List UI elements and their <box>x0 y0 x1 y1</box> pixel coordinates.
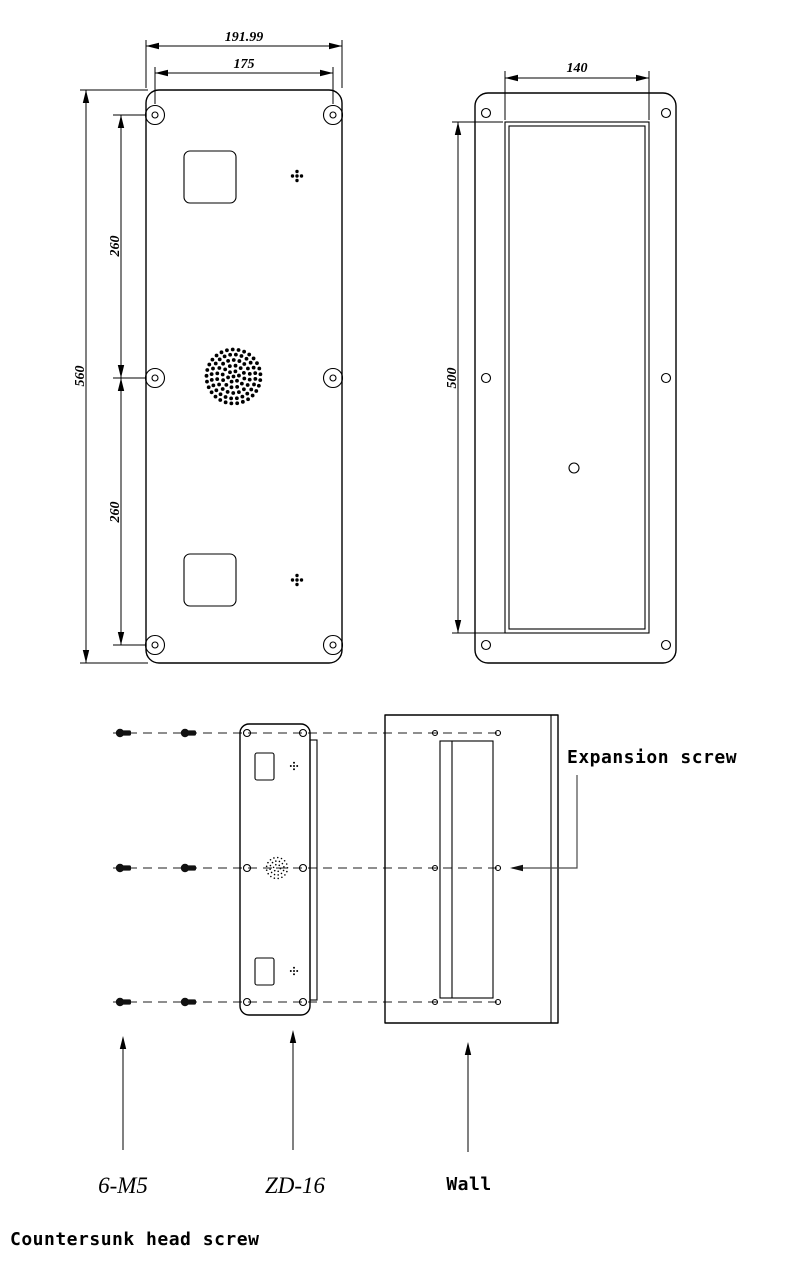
grille-dot <box>214 362 218 366</box>
grille-dot <box>218 357 222 361</box>
grille-dot <box>232 358 236 362</box>
screw-shank <box>122 730 131 735</box>
grille-dot <box>281 877 283 879</box>
cross-dot <box>293 973 295 975</box>
grille-dot <box>242 350 246 354</box>
grille-dot <box>274 874 276 876</box>
grille-dot <box>214 388 218 392</box>
grille-dot <box>247 353 251 357</box>
grille-dot <box>267 862 269 864</box>
grille-dot <box>228 370 232 374</box>
grille-dot <box>237 348 241 352</box>
grille-dot <box>286 863 288 865</box>
arrowhead-left <box>505 75 518 81</box>
arrowhead-left <box>155 70 168 76</box>
grille-dot <box>225 348 229 352</box>
grille-dot <box>279 861 281 863</box>
grille-dot <box>223 354 227 358</box>
cross-dot <box>290 765 292 767</box>
grille-dot <box>283 870 285 872</box>
grille-dot <box>240 395 244 399</box>
frame-hole <box>482 374 491 383</box>
expansion-screw-label: Expansion screw <box>567 747 737 768</box>
technical-drawing: 191.99 175 560 <box>0 0 800 1276</box>
front-panel-outline <box>146 90 342 663</box>
arrowhead-up <box>120 1036 126 1049</box>
cross-dot <box>295 174 298 177</box>
grille-dot <box>229 402 233 406</box>
cross-dot <box>295 574 298 577</box>
grille-dot <box>217 366 221 370</box>
drawing-page: 191.99 175 560 <box>0 0 800 1276</box>
grille-dot <box>246 383 250 387</box>
grille-dot <box>280 868 282 870</box>
cross-dot <box>291 174 294 177</box>
grille-dot <box>239 366 243 370</box>
grille-dot <box>254 389 258 393</box>
grille-dot <box>230 385 234 389</box>
grille-dot <box>269 868 271 870</box>
cross-dot <box>300 578 303 581</box>
grille-dot <box>211 358 215 362</box>
grille-dot <box>275 860 277 862</box>
grille-dot <box>277 878 279 880</box>
dim-opening-height-text: 500 <box>445 368 460 389</box>
dim-mount-width-text: 175 <box>234 57 255 72</box>
cross-dot <box>293 762 295 764</box>
cross-dot <box>295 583 298 586</box>
grille-dot <box>283 866 285 868</box>
cross-dot <box>300 174 303 177</box>
grille-dot <box>245 357 249 361</box>
mount-hole-outer <box>324 636 343 655</box>
grille-dot <box>287 867 289 869</box>
grille-dot <box>246 397 250 401</box>
arrowhead-down <box>83 650 89 663</box>
grille-dot <box>266 869 268 871</box>
front-speaker-grille <box>205 348 263 406</box>
dim-opening-height: 500 <box>445 122 507 633</box>
grille-dot <box>241 400 245 404</box>
grille-dot <box>205 380 209 384</box>
grille-dot <box>270 876 272 878</box>
grille-dot <box>221 378 225 382</box>
grille-dot <box>273 867 275 869</box>
grille-dot <box>277 870 279 872</box>
grille-dot <box>277 857 279 859</box>
countersunk-label: Countersunk head screw <box>10 1229 259 1250</box>
grille-dot <box>235 401 239 405</box>
grille-dot <box>215 371 219 375</box>
cross-dot <box>296 765 298 767</box>
dim-overall-height: 560 <box>73 90 148 663</box>
mount-hole-outer <box>146 106 165 125</box>
grille-dot <box>275 864 277 866</box>
front-bottom-cutout <box>184 554 236 606</box>
grille-dot <box>234 353 238 357</box>
grille-dot <box>282 863 284 865</box>
rear-mount-holes <box>482 109 671 650</box>
grille-dot <box>281 858 283 860</box>
arrowhead-right <box>329 43 342 49</box>
grille-dot <box>249 388 253 392</box>
grille-dot <box>270 859 272 861</box>
grille-dot <box>224 395 228 399</box>
grille-dot <box>221 362 225 366</box>
cross-dot <box>290 970 292 972</box>
grille-dot <box>211 383 215 387</box>
mount-hole-inner <box>152 642 158 648</box>
wall-label: Wall <box>446 1174 491 1195</box>
grille-dot <box>217 383 221 387</box>
grille-dot <box>237 374 241 378</box>
dim-mount-upper-text: 260 <box>108 236 123 258</box>
countersunk-screws <box>116 729 196 1006</box>
arrowhead-down <box>118 632 124 645</box>
cross-dot <box>293 970 295 972</box>
arrowhead-up <box>83 90 89 103</box>
grille-dot <box>223 367 227 371</box>
grille-dot <box>232 375 236 379</box>
grille-dot <box>231 391 235 395</box>
grille-dot <box>235 385 239 389</box>
mount-hole-inner <box>152 112 158 118</box>
dim-overall-height-text: 560 <box>73 366 88 387</box>
grille-dot <box>259 372 263 376</box>
grille-dot <box>252 357 256 361</box>
grille-dot <box>215 354 219 358</box>
grille-dot <box>230 380 234 384</box>
grille-dot <box>270 865 272 867</box>
front-top-cutout <box>184 151 236 203</box>
front-screw-crosses <box>291 170 303 586</box>
frame-hole <box>662 109 671 118</box>
mount-hole-inner <box>152 375 158 381</box>
arrowhead-up <box>118 378 124 391</box>
grille-dot <box>207 363 211 367</box>
grille-dot <box>253 371 257 375</box>
grille-dot <box>224 383 228 387</box>
screw-spec-callout: 6-M5 <box>98 1036 148 1198</box>
grille-dot <box>242 387 246 391</box>
grille-dot <box>207 385 211 389</box>
screw-shank <box>187 730 196 735</box>
frame-hole <box>662 641 671 650</box>
grille-dot <box>281 873 283 875</box>
cross-dot <box>293 765 295 767</box>
grille-dot <box>266 865 268 867</box>
install-bottom-cutout <box>255 958 274 985</box>
arrowhead-right <box>320 70 333 76</box>
grille-dot <box>248 378 252 382</box>
rear-opening-inner <box>509 126 645 629</box>
grille-dot <box>274 877 276 879</box>
arrowhead-up <box>290 1030 296 1043</box>
leader-line <box>512 775 577 868</box>
model-callout: ZD-16 <box>265 1030 326 1198</box>
grille-dot <box>245 392 249 396</box>
grille-dot <box>240 354 244 358</box>
arrowhead-up <box>118 115 124 128</box>
dim-mount-spacing: 260 260 <box>108 115 145 645</box>
grille-dot <box>234 369 238 373</box>
screw-shank <box>122 999 131 1004</box>
wall-callout: Wall <box>446 1042 491 1195</box>
grille-dot <box>253 377 257 381</box>
grille-dot <box>221 387 225 391</box>
grille-dot <box>286 871 288 873</box>
grille-dot <box>205 368 209 372</box>
grille-dot <box>240 382 244 386</box>
cross-dot <box>293 768 295 770</box>
arrowhead-down <box>118 365 124 378</box>
grille-dot <box>235 379 239 383</box>
wall-outline <box>385 715 558 1023</box>
grille-dot <box>284 874 286 876</box>
grille-dot <box>220 350 224 354</box>
front-view: 191.99 175 560 <box>73 30 343 663</box>
model-label: ZD-16 <box>265 1173 326 1198</box>
expansion-screw-callout: Expansion screw <box>510 747 737 871</box>
wall-recess <box>440 741 493 998</box>
dim-opening-width-text: 140 <box>567 61 588 76</box>
installation-view: Expansion screw 6-M5 ZD-16 Wall Counters… <box>10 715 737 1250</box>
frame-hole <box>662 374 671 383</box>
grille-dot <box>210 390 214 394</box>
grille-dot <box>255 361 259 365</box>
grille-dot <box>284 860 286 862</box>
dim-mount-width: 175 <box>155 57 333 104</box>
install-panel-body <box>310 740 317 1000</box>
grille-dot <box>278 865 280 867</box>
cross-dot <box>295 170 298 173</box>
grille-dot <box>218 398 222 402</box>
grille-dot <box>273 857 275 859</box>
grille-dot <box>229 396 233 400</box>
frame-hole <box>482 109 491 118</box>
mount-hole-inner <box>330 375 336 381</box>
grille-dot <box>224 400 228 404</box>
grille-dot <box>257 367 261 371</box>
grille-dot <box>221 373 225 377</box>
grille-dot <box>242 377 246 381</box>
rear-opening-outer <box>505 122 649 633</box>
cross-dot <box>295 578 298 581</box>
mount-hole-outer <box>146 636 165 655</box>
cross-dot <box>295 179 298 182</box>
grille-dot <box>237 390 241 394</box>
mount-hole-inner <box>330 642 336 648</box>
grille-dot <box>205 374 209 378</box>
grille-dot <box>234 364 238 368</box>
grille-dot <box>237 359 241 363</box>
grille-dot <box>231 348 235 352</box>
grille-dot <box>215 377 219 381</box>
grille-dot <box>272 862 274 864</box>
screw-spec-label: 6-M5 <box>98 1173 148 1198</box>
grille-dot <box>226 376 230 380</box>
grille-dot <box>210 378 214 382</box>
grille-dot <box>242 362 246 366</box>
grille-dot <box>248 372 252 376</box>
mount-hole-inner <box>330 112 336 118</box>
install-top-cutout <box>255 753 274 780</box>
grille-dot <box>276 867 278 869</box>
frame-hole <box>482 641 491 650</box>
grille-dot <box>271 872 273 874</box>
grille-dot <box>214 395 218 399</box>
grille-dot <box>242 371 246 375</box>
arrowhead-up <box>455 122 461 135</box>
grille-dot <box>251 394 255 398</box>
grille-dot <box>246 367 250 371</box>
grille-dot <box>252 366 256 370</box>
grille-dot <box>257 384 261 388</box>
cross-dot <box>293 967 295 969</box>
dim-mount-lower-text: 260 <box>108 502 123 524</box>
grille-dot <box>274 870 276 872</box>
grille-dot <box>252 383 256 387</box>
screw-shank <box>187 999 196 1004</box>
arrowhead-right <box>636 75 649 81</box>
rear-view: 140 500 <box>445 61 676 663</box>
dim-overall-width-text: 191.99 <box>225 30 264 45</box>
grille-dot <box>228 364 232 368</box>
grille-dot <box>249 361 253 365</box>
rear-center-hole <box>569 463 579 473</box>
grille-dot <box>226 390 230 394</box>
screw-shank <box>122 865 131 870</box>
arrowhead-left <box>510 865 523 871</box>
arrowhead-up <box>465 1042 471 1055</box>
cross-dot <box>291 578 294 581</box>
arrowhead-left <box>146 43 159 49</box>
mount-hole-outer <box>324 106 343 125</box>
grille-dot <box>210 372 214 376</box>
grille-dot <box>258 378 262 382</box>
dim-opening-width: 140 <box>505 61 649 120</box>
arrowhead-down <box>455 620 461 633</box>
grille-dot <box>219 392 223 396</box>
grille-dot <box>235 396 239 400</box>
cross-dot <box>296 970 298 972</box>
mount-hole-outer <box>324 369 343 388</box>
grille-dot <box>228 353 232 357</box>
grille-dot <box>267 873 269 875</box>
grille-dot <box>226 359 230 363</box>
grille-dot <box>277 874 279 876</box>
grille-dot <box>211 367 215 371</box>
screw-shank <box>187 865 196 870</box>
mount-hole-outer <box>146 369 165 388</box>
